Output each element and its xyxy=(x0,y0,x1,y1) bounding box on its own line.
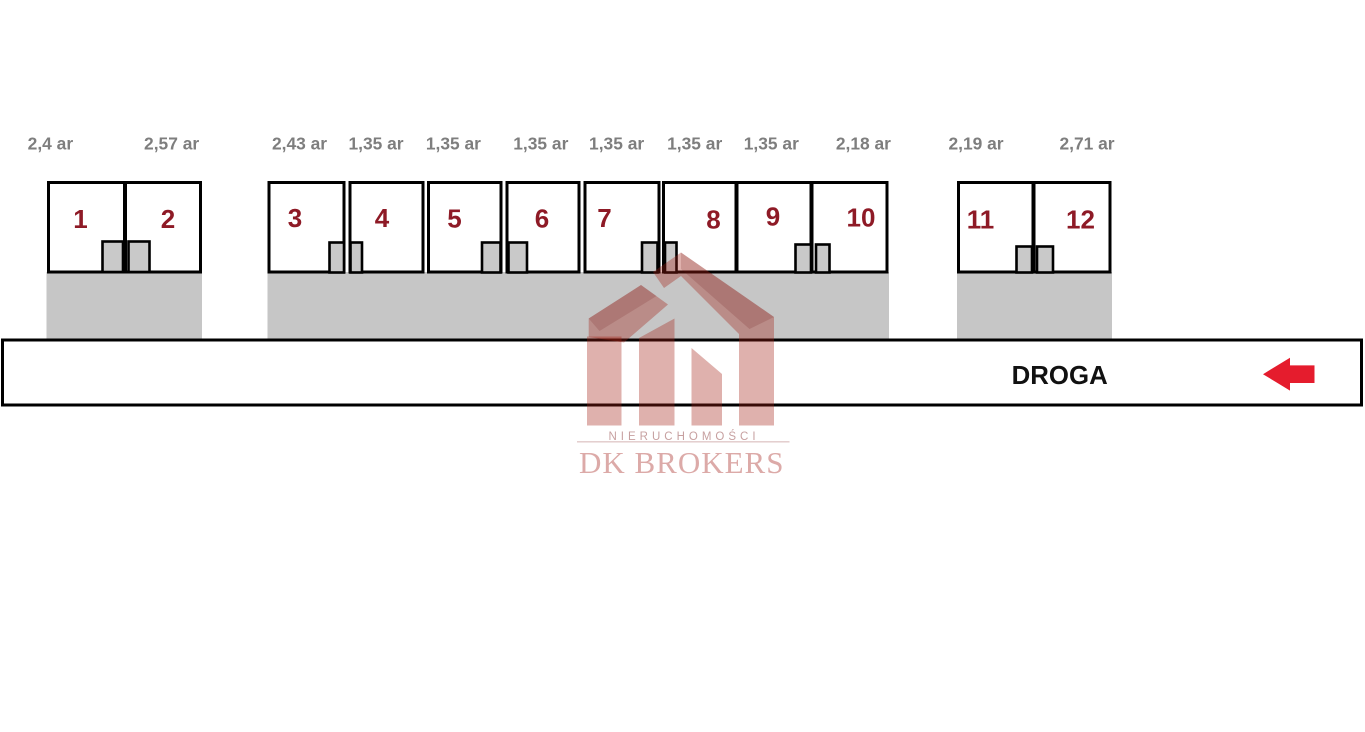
svg-text:1,35 ar: 1,35 ar xyxy=(513,134,568,154)
svg-text:2,4 ar: 2,4 ar xyxy=(28,134,74,154)
svg-text:2: 2 xyxy=(161,204,175,234)
svg-text:2,19 ar: 2,19 ar xyxy=(948,134,1003,154)
svg-text:10: 10 xyxy=(847,203,876,233)
svg-text:3: 3 xyxy=(288,203,302,233)
svg-text:1,35 ar: 1,35 ar xyxy=(348,134,403,154)
svg-text:1,35 ar: 1,35 ar xyxy=(589,134,644,154)
svg-text:1,35 ar: 1,35 ar xyxy=(667,134,722,154)
svg-text:2,57 ar: 2,57 ar xyxy=(144,134,199,154)
svg-text:2,71 ar: 2,71 ar xyxy=(1059,134,1114,154)
svg-text:4: 4 xyxy=(375,203,390,233)
svg-text:1,35 ar: 1,35 ar xyxy=(426,134,481,154)
svg-text:2,18 ar: 2,18 ar xyxy=(836,134,891,154)
svg-text:9: 9 xyxy=(766,202,780,232)
svg-text:8: 8 xyxy=(706,205,720,235)
svg-text:1,35 ar: 1,35 ar xyxy=(744,134,799,154)
svg-text:NIERUCHOMOŚCI: NIERUCHOMOŚCI xyxy=(608,430,759,443)
svg-text:12: 12 xyxy=(1066,205,1095,235)
svg-text:11: 11 xyxy=(967,205,995,235)
svg-text:2,43 ar: 2,43 ar xyxy=(272,134,327,154)
svg-text:1: 1 xyxy=(73,204,87,234)
svg-text:7: 7 xyxy=(597,203,611,233)
svg-text:6: 6 xyxy=(535,204,549,234)
svg-text:DROGA: DROGA xyxy=(1012,362,1108,390)
svg-text:DK BROKERS: DK BROKERS xyxy=(579,445,785,480)
svg-text:5: 5 xyxy=(447,204,461,234)
